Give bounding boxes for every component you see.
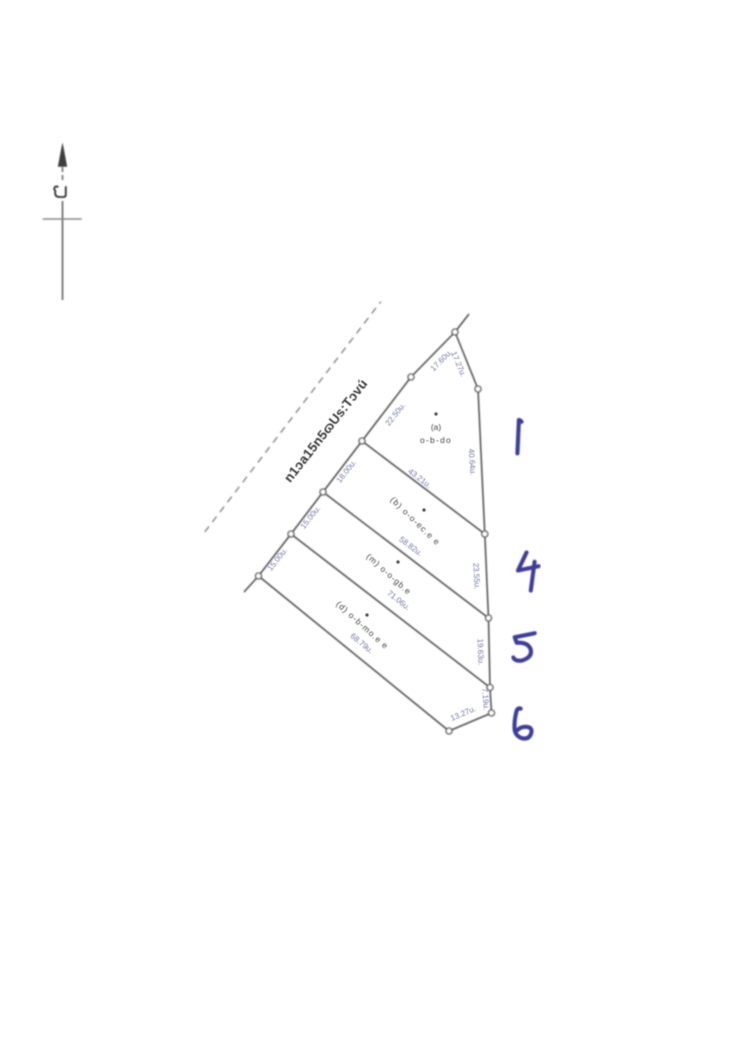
svg-text:15.00u.: 15.00u. [266,546,290,573]
svg-text:40.64u.: 40.64u. [467,448,478,475]
svg-text:19.63u.: 19.63u. [476,639,486,666]
svg-text:22.50u.: 22.50u. [384,401,408,428]
svg-text:17.27u.: 17.27u. [449,350,468,378]
svg-text:23.55u.: 23.55u. [471,562,481,589]
svg-text:7.19u.: 7.19u. [480,688,491,711]
svg-text:58.82u.: 58.82u. [397,535,424,558]
svg-text:(b) o-o-ec.e e: (b) o-o-ec.e e [388,495,442,548]
svg-text:o-b-do: o-b-do [420,435,452,445]
svg-text:n1ɔa15n5ɷUs:Tɔvú: n1ɔa15n5ɷUs:Tɔvú [281,376,371,485]
svg-text:(a): (a) [431,422,441,432]
svg-text:17.60u.: 17.60u. [429,348,454,373]
